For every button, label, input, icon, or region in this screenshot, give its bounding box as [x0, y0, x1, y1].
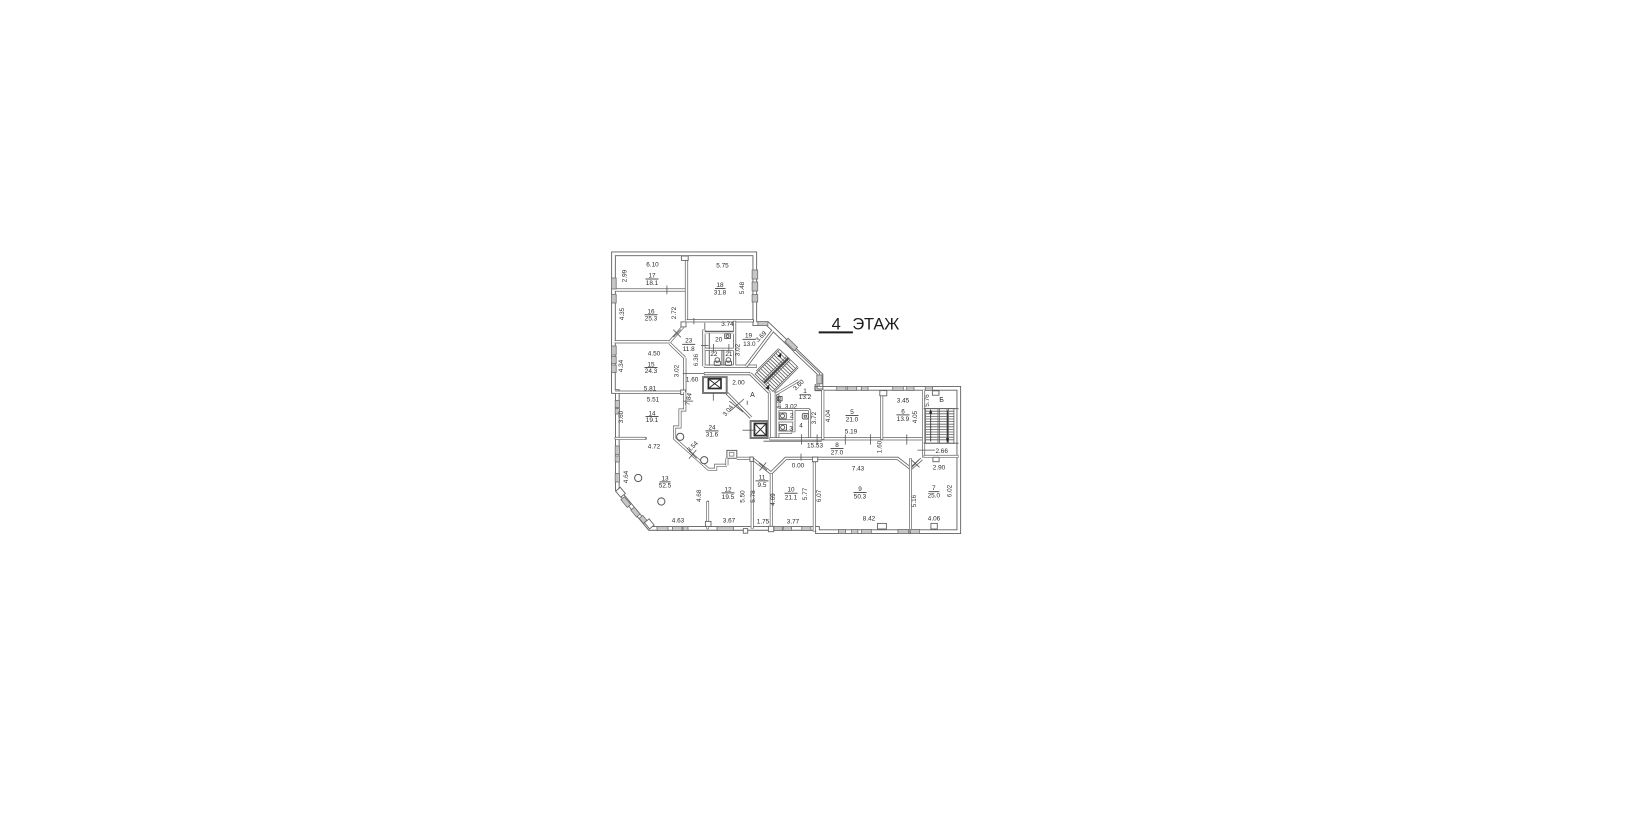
svg-text:2.72: 2.72 — [671, 306, 678, 319]
svg-text:8: 8 — [835, 442, 839, 449]
svg-text:4.68: 4.68 — [696, 489, 703, 502]
svg-text:4.69: 4.69 — [770, 493, 777, 506]
svg-text:5.76: 5.76 — [924, 394, 931, 407]
svg-text:21.1: 21.1 — [785, 495, 798, 502]
svg-text:7: 7 — [932, 485, 936, 492]
svg-text:ЭТАЖ: ЭТАЖ — [852, 316, 900, 334]
svg-text:1.75: 1.75 — [757, 518, 770, 525]
svg-text:50.3: 50.3 — [854, 494, 867, 501]
svg-text:5.51: 5.51 — [647, 396, 660, 403]
svg-text:2.90: 2.90 — [933, 464, 946, 471]
svg-text:4.04: 4.04 — [825, 409, 832, 422]
svg-text:21.0: 21.0 — [846, 416, 859, 423]
svg-text:24.3: 24.3 — [645, 368, 658, 375]
svg-text:3.77: 3.77 — [787, 518, 800, 525]
svg-text:5.48: 5.48 — [739, 281, 746, 294]
svg-text:52.5: 52.5 — [659, 483, 672, 490]
svg-text:3.72: 3.72 — [811, 411, 818, 424]
svg-text:10: 10 — [787, 486, 795, 493]
svg-text:27.0: 27.0 — [831, 449, 844, 456]
svg-text:25.3: 25.3 — [645, 316, 658, 323]
svg-text:5.75: 5.75 — [716, 262, 729, 269]
svg-text:11: 11 — [759, 474, 766, 481]
svg-text:5.19: 5.19 — [845, 428, 858, 435]
svg-text:6.02: 6.02 — [947, 484, 954, 497]
svg-text:3.04: 3.04 — [722, 404, 736, 418]
svg-text:8.42: 8.42 — [863, 515, 876, 522]
svg-text:4: 4 — [832, 316, 841, 334]
svg-text:3.02: 3.02 — [785, 403, 798, 410]
svg-text:17: 17 — [648, 273, 656, 280]
svg-text:25.0: 25.0 — [928, 493, 941, 500]
svg-text:24: 24 — [708, 425, 716, 432]
svg-text:3.02: 3.02 — [674, 364, 681, 377]
svg-text:21: 21 — [725, 351, 733, 358]
svg-text:19.5: 19.5 — [722, 494, 735, 501]
svg-text:Б: Б — [939, 397, 944, 404]
svg-text:4.63: 4.63 — [672, 517, 685, 524]
svg-text:2.66: 2.66 — [935, 448, 948, 455]
svg-text:11.8: 11.8 — [683, 346, 695, 353]
svg-text:3.60: 3.60 — [618, 410, 625, 423]
svg-text:4.35: 4.35 — [619, 307, 626, 320]
svg-text:4: 4 — [799, 422, 803, 429]
svg-text:18: 18 — [716, 282, 724, 289]
svg-text:5.77: 5.77 — [802, 487, 809, 500]
svg-text:3.74: 3.74 — [721, 321, 734, 328]
svg-text:5.81: 5.81 — [644, 385, 657, 392]
svg-text:16: 16 — [647, 308, 655, 315]
svg-text:12: 12 — [724, 486, 732, 493]
svg-text:13.9: 13.9 — [897, 416, 910, 423]
svg-text:4.72: 4.72 — [648, 443, 661, 450]
svg-text:1.60: 1.60 — [686, 376, 699, 383]
svg-text:4.06: 4.06 — [928, 515, 941, 522]
svg-text:6.07: 6.07 — [816, 489, 823, 502]
svg-text:18.1: 18.1 — [646, 280, 659, 287]
svg-text:15.53: 15.53 — [807, 442, 823, 449]
svg-text:31.8: 31.8 — [714, 290, 727, 297]
svg-text:22: 22 — [710, 351, 718, 358]
svg-text:6.36: 6.36 — [693, 353, 700, 366]
svg-text:9.5: 9.5 — [758, 482, 767, 489]
svg-text:2.00: 2.00 — [732, 379, 745, 386]
svg-text:20: 20 — [715, 336, 723, 343]
svg-text:5.16: 5.16 — [911, 494, 918, 507]
svg-text:3: 3 — [789, 426, 793, 433]
svg-text:1.60: 1.60 — [877, 440, 884, 453]
svg-text:23: 23 — [685, 337, 693, 344]
svg-text:31.6: 31.6 — [706, 432, 719, 439]
svg-text:4.64: 4.64 — [623, 470, 630, 483]
svg-text:7.84: 7.84 — [684, 392, 693, 406]
svg-text:7.43: 7.43 — [852, 465, 865, 472]
svg-text:3.67: 3.67 — [723, 517, 736, 524]
svg-text:2.99: 2.99 — [622, 269, 629, 282]
svg-text:1.28: 1.28 — [776, 396, 783, 409]
svg-text:4.34: 4.34 — [618, 359, 625, 372]
svg-text:19: 19 — [745, 332, 753, 339]
svg-text:3.45: 3.45 — [897, 397, 910, 404]
svg-text:4.05: 4.05 — [912, 410, 919, 423]
svg-text:3.54: 3.54 — [686, 440, 700, 454]
svg-text:0.00: 0.00 — [792, 462, 805, 469]
svg-text:19.1: 19.1 — [646, 417, 659, 424]
svg-text:13.0: 13.0 — [743, 341, 756, 348]
svg-text:6.10: 6.10 — [646, 261, 659, 268]
svg-text:5.78: 5.78 — [750, 490, 757, 503]
svg-text:4.50: 4.50 — [648, 350, 661, 357]
svg-text:А: А — [750, 392, 755, 399]
svg-text:3.02: 3.02 — [735, 343, 742, 356]
svg-text:9: 9 — [858, 486, 862, 493]
svg-text:2: 2 — [790, 413, 794, 420]
svg-text:5.50: 5.50 — [739, 490, 746, 503]
